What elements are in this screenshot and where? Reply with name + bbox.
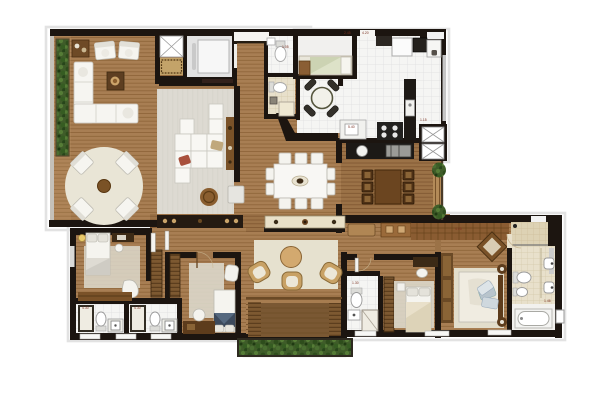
svg-text:1.30: 1.30 bbox=[352, 281, 359, 285]
svg-text:1.46: 1.46 bbox=[544, 299, 551, 303]
svg-text:4.30: 4.30 bbox=[82, 306, 89, 310]
svg-text:1.15: 1.15 bbox=[420, 118, 427, 122]
svg-text:4.20: 4.20 bbox=[362, 31, 369, 35]
svg-text:4.05: 4.05 bbox=[455, 227, 462, 231]
svg-text:5.40: 5.40 bbox=[348, 125, 355, 129]
svg-text:1.05: 1.05 bbox=[282, 45, 289, 49]
svg-text:4.30: 4.30 bbox=[134, 306, 141, 310]
svg-text:2.45: 2.45 bbox=[344, 31, 351, 35]
